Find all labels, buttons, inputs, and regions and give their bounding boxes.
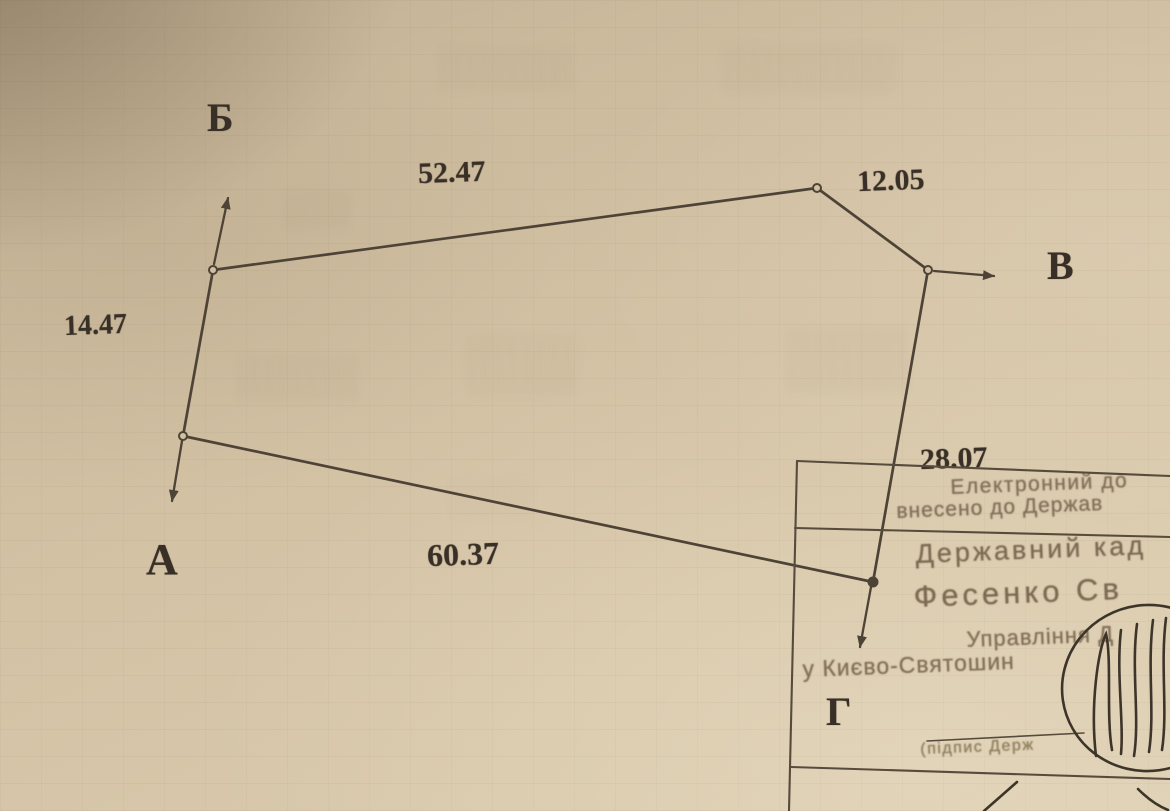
direction-arrow-g — [860, 587, 871, 647]
vertex-point-g — [869, 578, 878, 587]
signature-scribble — [1162, 618, 1166, 750]
measurement-g-a: 60.37 — [426, 537, 499, 571]
signature-scribble — [1134, 624, 1137, 756]
vertex-label-v: В — [1047, 246, 1074, 286]
stamp-signature-caption: (підпис Держ — [920, 737, 1035, 759]
scanned-survey-sketch: Б В А Г 52.47 12.05 14.47 60.37 28.07 Ел… — [0, 0, 1170, 811]
parcel-edge-b-corner — [213, 188, 817, 270]
stamp-office-line2: у Києво-Святошин — [802, 648, 1015, 683]
paper-bleedthrough — [468, 334, 580, 396]
stamp-registrar-name: Фесенко Св — [913, 571, 1124, 615]
vertex-label-g: Г — [826, 692, 851, 732]
direction-arrow-a — [172, 441, 182, 501]
measurement-b-corner: 52.47 — [417, 157, 486, 189]
signature-stroke — [1138, 789, 1168, 810]
paper-bleedthrough — [788, 327, 908, 393]
vertex-label-a: А — [146, 538, 178, 582]
vertex-point-b — [209, 266, 217, 274]
stamp-border-bottom — [791, 767, 1170, 779]
parcel-edge-corner-v — [817, 188, 928, 270]
parcel-drawing — [0, 0, 1170, 811]
paper-bleedthrough — [724, 44, 896, 94]
signature-scribble — [1149, 620, 1153, 752]
vertex-point-corner — [813, 184, 821, 192]
direction-arrow-b — [214, 198, 228, 264]
paper-bleedthrough — [238, 354, 364, 402]
parcel-edge-g-a — [183, 436, 873, 582]
vertex-point-a — [179, 432, 187, 440]
measurement-a-b: 14.47 — [64, 311, 128, 341]
parcel-edge-v-g — [873, 270, 928, 582]
measurement-corner-v: 12.05 — [856, 165, 925, 197]
vertex-label-b: Б — [207, 98, 233, 138]
parcel-boundary — [183, 188, 928, 582]
signature-scribble — [1094, 634, 1112, 756]
paper-bleedthrough — [452, 478, 536, 518]
stamp-registrar-title: Державний кад — [915, 530, 1147, 570]
stamp-entry-note-line2: внесено до Держав — [896, 492, 1104, 524]
direction-arrow-v — [934, 271, 994, 276]
parcel-edge-a-b — [183, 270, 213, 436]
signature-scribble — [1119, 630, 1121, 754]
measurement-v-g: 28.07 — [919, 443, 988, 475]
paper-bleedthrough — [286, 190, 348, 230]
paper-bleedthrough — [440, 46, 572, 92]
signature-stroke — [984, 782, 1017, 811]
vertex-point-v — [924, 266, 932, 274]
stamp-border-left — [789, 461, 797, 811]
